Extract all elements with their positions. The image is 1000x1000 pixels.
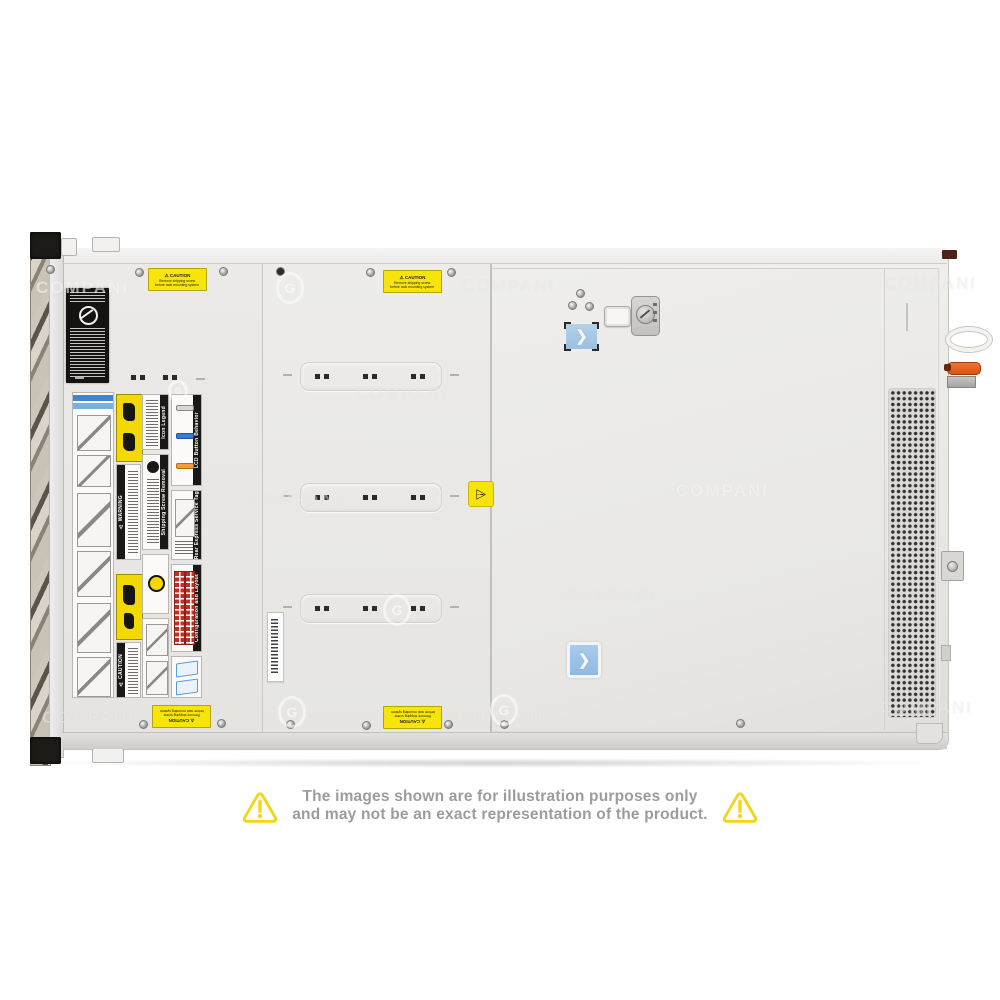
shipping-screw-band: Shipping Screw Removal <box>160 455 168 549</box>
caution-title: ⚠ CAUTION <box>400 275 426 281</box>
cover-latch-blue-touchpoint: ❯ <box>566 324 597 349</box>
cover-recess-handle <box>300 594 442 623</box>
rail-diagram-label <box>171 656 202 698</box>
chassis-screw <box>444 720 453 729</box>
watermark-logo-icon: G <box>490 694 518 726</box>
disclaimer-line-1: The images shown are for illustration pu… <box>292 788 708 806</box>
corner-mark <box>564 322 571 329</box>
vent-slot-pair <box>411 374 425 379</box>
rear-screw-bracket <box>941 551 964 581</box>
watermark-logo-icon: G <box>276 272 304 304</box>
etch-dash <box>450 495 459 497</box>
label-blue-ribbon <box>73 395 113 401</box>
vent-slot-pair <box>363 495 377 500</box>
chassis-screw <box>736 719 745 728</box>
shipping-screw-fine-print <box>147 479 159 543</box>
certification-mark-icon <box>79 306 98 325</box>
front-tab-top <box>61 238 77 256</box>
lcd-bar-gray <box>176 405 194 411</box>
front-panel-strip <box>49 240 64 758</box>
shipping-screw-title: Shipping Screw Removal <box>161 469 167 535</box>
chassis-screw <box>366 268 375 277</box>
express-service-tag-label: Rear Express Service Tag <box>171 490 202 560</box>
icon-legend-rows <box>146 400 158 446</box>
rear-etched-mark <box>906 303 908 331</box>
watermark-text: COMPANI <box>42 708 135 728</box>
icon-legend-title: Icon Legend <box>161 406 167 439</box>
icon-legend-column: Icon Legend Shipping Screw Removal <box>142 392 169 698</box>
clock-icon <box>148 575 165 592</box>
chassis-top-lip <box>62 248 947 264</box>
watermark-text: COMPANI <box>36 278 129 298</box>
rear-pull-ring <box>946 327 992 352</box>
caution-text-label: ⚠ CAUTION <box>116 642 141 698</box>
configuration-layout-label: Configuration and Layout <box>171 564 202 652</box>
diagram-figure <box>77 551 111 597</box>
diagram-label <box>142 618 169 698</box>
caution-fine-print <box>128 648 138 694</box>
regulatory-label <box>66 288 109 383</box>
timer-caution-label <box>142 554 169 614</box>
caution-title: ⚠ CAUTION <box>400 719 426 725</box>
rail-diagram <box>176 678 198 695</box>
diagram-figure <box>146 624 168 656</box>
etch-dash <box>75 377 84 379</box>
caution-title: ⚠ CAUTION <box>169 718 195 724</box>
rear-corner-tab <box>916 723 943 744</box>
barcode-sticker <box>267 612 284 682</box>
watermark-text: COMPANI <box>563 586 656 606</box>
chassis-screw <box>362 721 371 730</box>
caution-sticker-bottom-right: ⚠ CAUTION Remove shipping screw before r… <box>383 706 442 729</box>
caution-line: Remove shipping screw <box>394 715 430 719</box>
vent-slot-pair <box>315 606 329 611</box>
drive-bay-grid <box>174 571 185 645</box>
caution-line: Remove shipping screw <box>159 279 195 283</box>
chassis-screw <box>139 720 148 729</box>
etch-dash <box>450 374 459 376</box>
warning-triangle-icon <box>242 790 278 823</box>
caution-band: ⚠ CAUTION <box>117 643 125 697</box>
chassis-screw <box>135 268 144 277</box>
vent-slot-pair <box>411 606 425 611</box>
hazard-glyph <box>123 433 135 451</box>
warning-band-title: ⚠ WARNING <box>118 495 124 529</box>
service-tag-fine-print <box>175 541 193 555</box>
vent-perforation-grid <box>888 388 936 718</box>
warning-fine-print <box>128 471 138 555</box>
server-top-view-photo: ⚠ CAUTION Remove shipping screw before r… <box>0 0 1000 1000</box>
pinch-hazard-icon <box>116 574 143 640</box>
vent-slot-pair <box>315 374 329 379</box>
hazard-glyph <box>123 403 135 421</box>
rear-orange-latch <box>947 362 981 375</box>
diagram-figure <box>77 603 111 653</box>
rear-latch-blue-touchpoint: ❯ <box>567 642 601 678</box>
caution-line: Remove shipping screw <box>163 714 199 718</box>
seam-warning-sticker: ⚠ <box>468 481 494 507</box>
rear-metal-bracket <box>947 376 976 388</box>
caution-line: Remove shipping screw <box>394 281 430 285</box>
rear-dark-tab <box>942 250 957 259</box>
corner-mark <box>592 322 599 329</box>
rear-small-tab <box>941 645 951 661</box>
lcd-bar-blue <box>176 433 194 439</box>
lock-unlock-icons <box>653 303 657 327</box>
label-blue-ribbon <box>73 403 113 409</box>
hazard-pictogram-column: ⚠ WARNING ⚠ CAUTION <box>116 392 141 698</box>
watermark-text: COMPANI <box>884 274 977 294</box>
rail-diagram <box>176 660 198 677</box>
watermark-text: COMPANI <box>676 481 769 501</box>
hazard-glyph <box>123 585 135 605</box>
rear-edge-line <box>938 268 940 730</box>
disclaimer-line-2: and may not be an exact representation o… <box>292 806 708 824</box>
etch-dash <box>283 374 292 376</box>
screw-head-icon <box>147 461 159 473</box>
cover-screw <box>568 301 577 310</box>
front-corner-block-top <box>30 232 61 259</box>
watermark-logo-icon: G <box>278 696 306 728</box>
caution-line: before rack mounting system <box>391 285 435 289</box>
lcd-title: LCD Button Behavior <box>194 412 200 468</box>
caution-sticker-top-right: ⚠ CAUTION Remove shipping screw before r… <box>383 270 442 293</box>
front-bezel-edge <box>30 232 51 766</box>
lcd-button-behavior-label: LCD Button Behavior <box>171 394 202 486</box>
warning-band: ⚠ WARNING <box>117 465 125 559</box>
caution-line: before rack mounting system <box>160 710 204 714</box>
cover-screw <box>585 302 594 311</box>
caution-sticker-top-left: ⚠ CAUTION Remove shipping screw before r… <box>148 268 207 291</box>
lcd-bar-amber <box>176 463 194 469</box>
diagram-figure <box>77 657 111 697</box>
disclaimer-text: The images shown are for illustration pu… <box>292 788 708 823</box>
drive-bay-grid <box>185 571 195 645</box>
corner-mark <box>564 344 571 351</box>
watermark-text: COMPANI <box>880 698 973 718</box>
corner-mark <box>592 344 599 351</box>
install-instructions-label <box>72 392 114 698</box>
vent-slot-pair <box>131 375 145 380</box>
disclaimer-row: The images shown are for illustration pu… <box>0 788 1000 823</box>
watermark-text: COMPANI <box>355 384 448 404</box>
icon-legend-label: Icon Legend <box>142 394 169 450</box>
chassis-screw <box>447 268 456 277</box>
vent-slot-pair <box>411 495 425 500</box>
cover-release-slider <box>604 306 631 327</box>
diagram-figure <box>77 493 111 547</box>
vent-slot-pair <box>363 606 377 611</box>
etch-dash <box>450 606 459 608</box>
caution-line: before rack mounting system <box>156 283 200 287</box>
icon-legend-band: Icon Legend <box>160 395 168 449</box>
chassis-screw <box>217 719 226 728</box>
rail-tab-bottom <box>92 748 124 763</box>
caution-title: ⚠ CAUTION <box>165 273 191 279</box>
front-corner-block-bottom <box>30 737 61 764</box>
watermark-text: COMPANI <box>462 276 555 296</box>
warning-triangle-icon <box>722 790 758 823</box>
watermark-text: COMPANI <box>250 490 343 510</box>
service-label-cluster: ⚠ WARNING ⚠ CAUTION Icon Legend <box>72 392 202 700</box>
caution-sticker-bottom-left: ⚠ CAUTION Remove shipping screw before r… <box>152 705 211 728</box>
warning-triangle-icon: ⚠ <box>475 488 488 500</box>
caution-band-title: ⚠ CAUTION <box>118 654 124 687</box>
regulatory-text-lines <box>70 328 105 378</box>
chassis-screw <box>46 265 55 274</box>
shipping-screw-label: Shipping Screw Removal <box>142 454 169 550</box>
pinch-hazard-icon <box>116 394 143 462</box>
chassis-shadow <box>34 758 944 768</box>
diagram-figure <box>77 455 111 487</box>
watermark-logo-icon: G <box>383 594 411 626</box>
hazard-glyph <box>124 613 134 629</box>
vent-panel-divider <box>884 268 885 730</box>
lcd-config-column: LCD Button Behavior Rear Express Service… <box>171 392 202 698</box>
warning-text-label: ⚠ WARNING <box>116 464 141 560</box>
cover-keylock <box>631 296 660 336</box>
lcd-band: LCD Button Behavior <box>193 395 201 485</box>
etch-dash <box>283 606 292 608</box>
etch-dash <box>196 378 205 380</box>
service-tag-diagram <box>175 499 195 537</box>
diagram-figure <box>146 661 168 695</box>
chassis-bottom-edge <box>62 732 947 749</box>
chassis-screw <box>219 267 228 276</box>
cover-screw <box>576 289 585 298</box>
rail-tab-top <box>92 237 120 252</box>
chevron-right-icon: ❯ <box>575 329 588 344</box>
watermark-logo-icon: G <box>168 380 188 402</box>
caution-line: before rack mounting system <box>391 711 435 715</box>
diagram-figure <box>77 415 111 451</box>
chevron-right-icon: ❯ <box>578 653 591 668</box>
vent-slot-pair <box>363 374 377 379</box>
